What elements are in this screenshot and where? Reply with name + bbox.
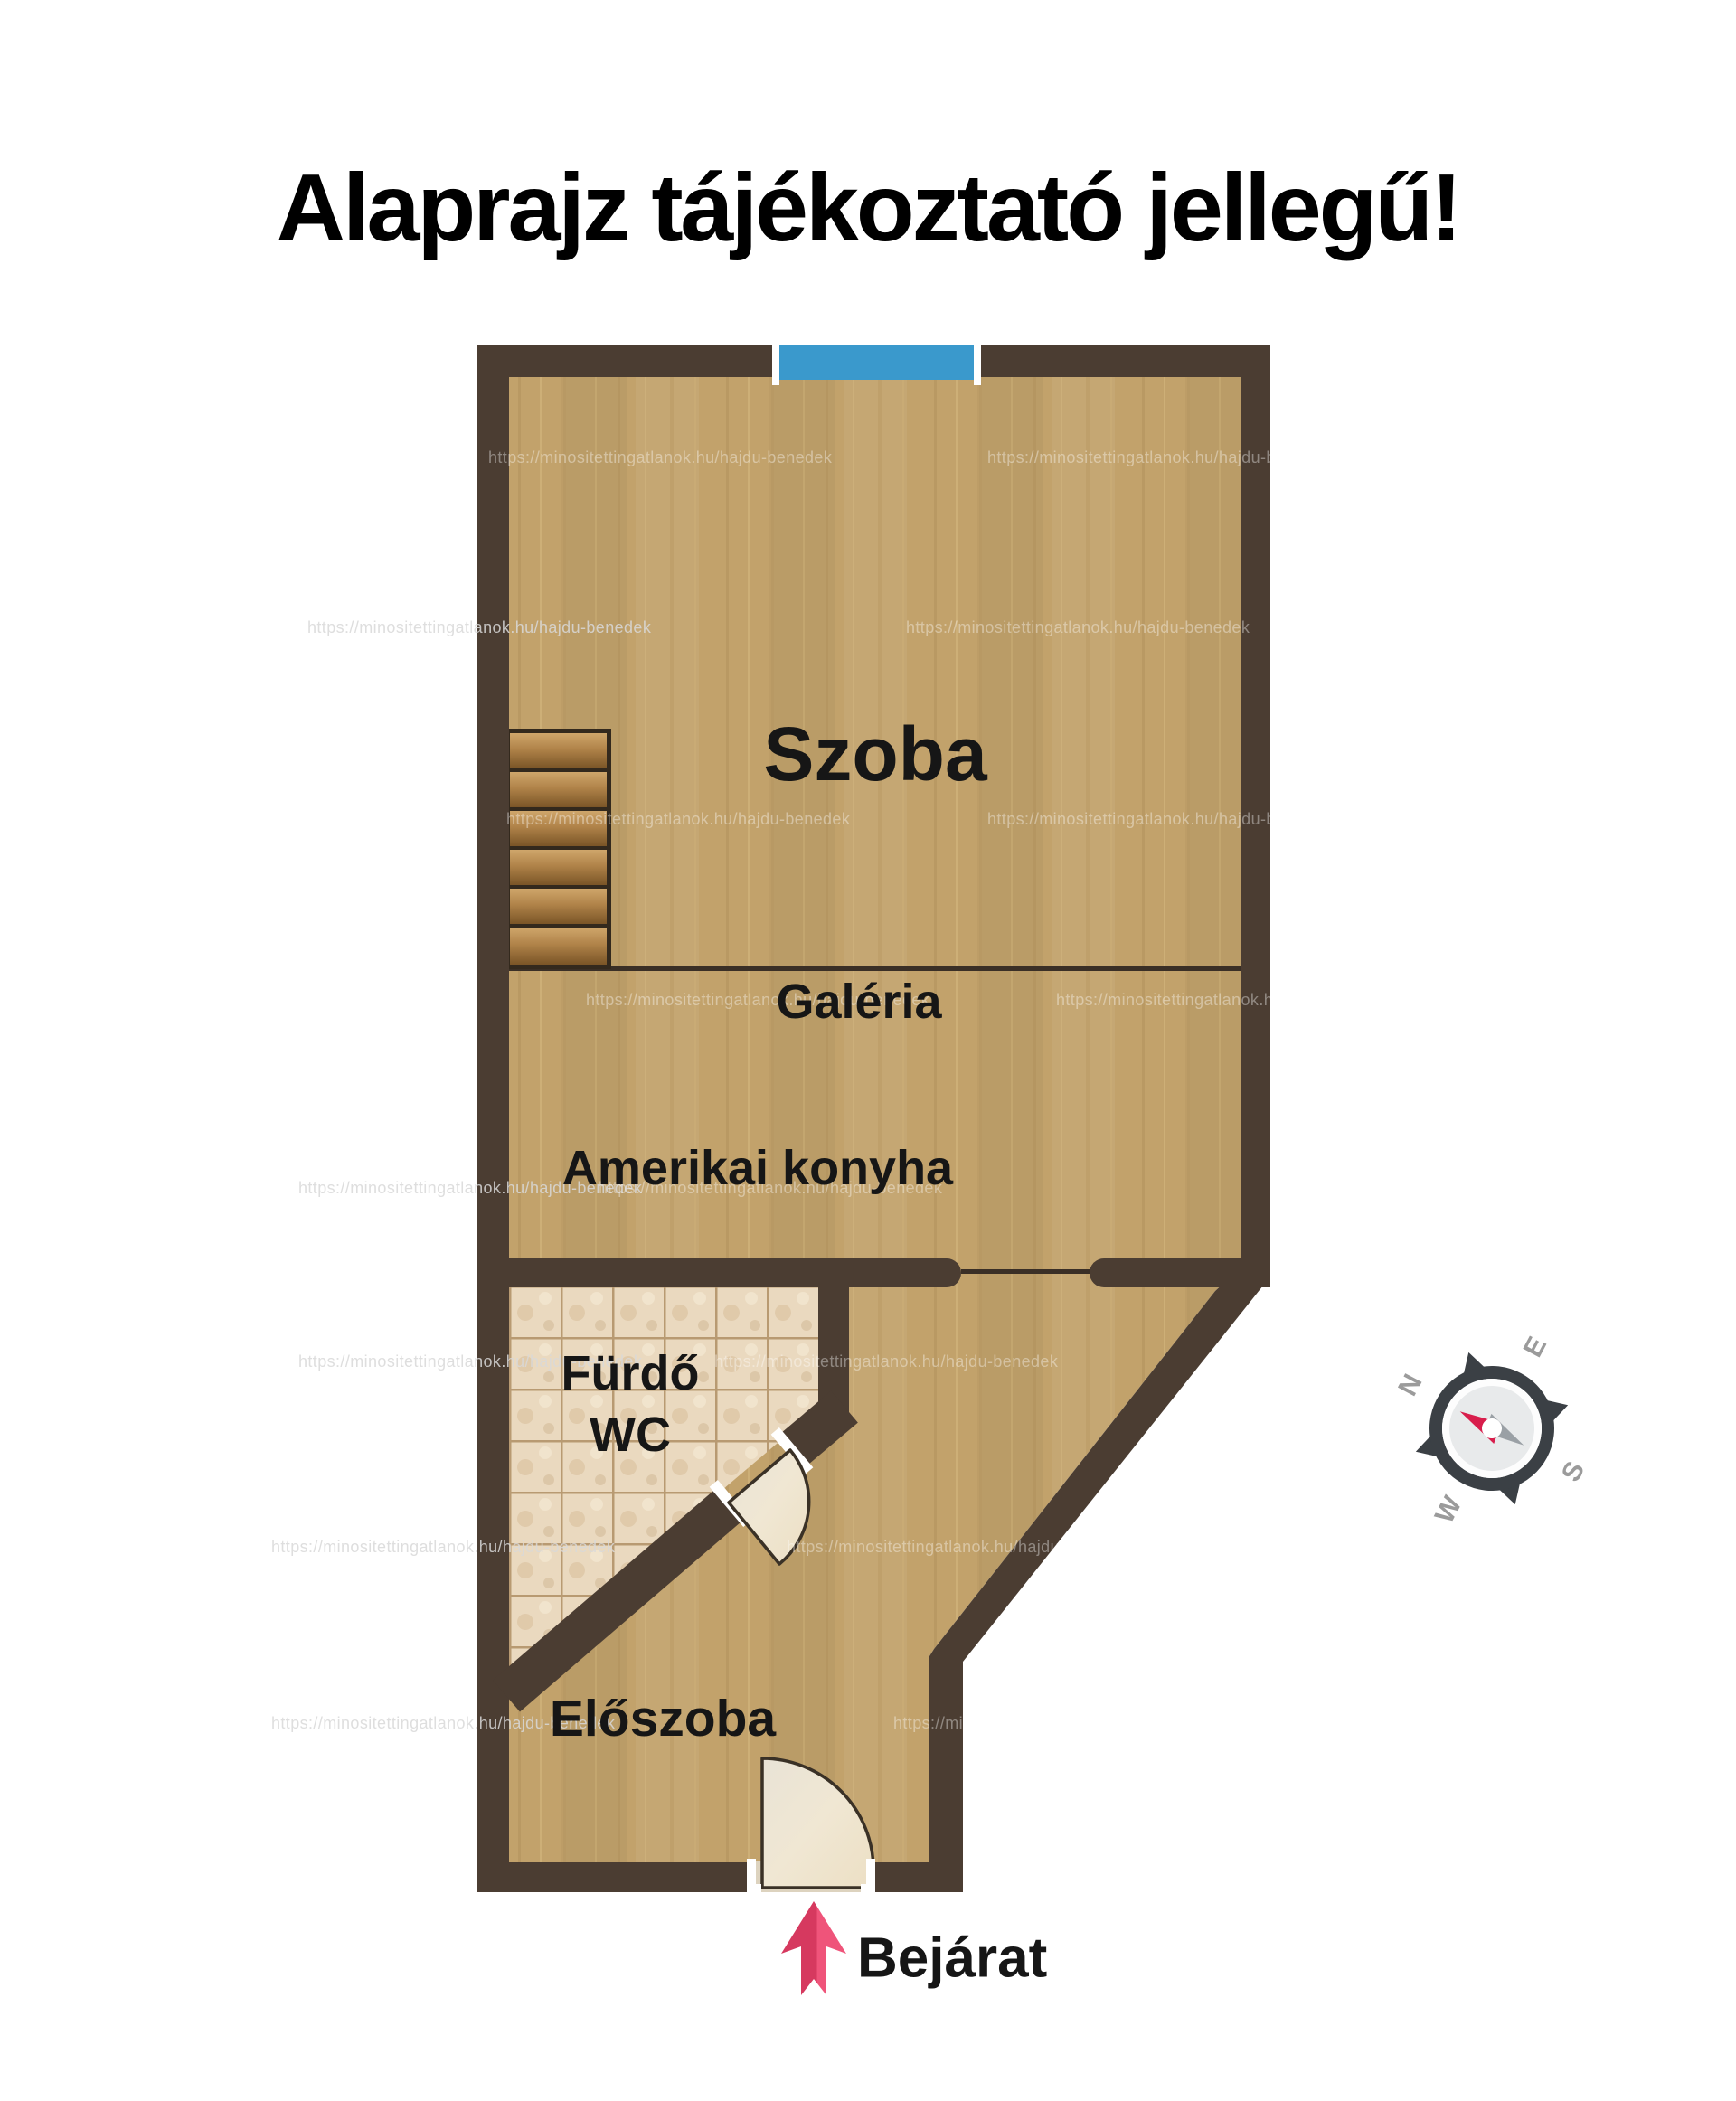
doorway-line: [961, 1269, 1090, 1274]
room-label-wc: WC: [590, 1408, 671, 1462]
compass-icon: N E S W: [1348, 1288, 1634, 1571]
room-label-furdo: Fürdő: [561, 1346, 700, 1400]
entrance-marker: Bejárat: [781, 1901, 1047, 1995]
room-label-galeria: Galéria: [776, 975, 942, 1029]
compass-label-s: S: [1556, 1456, 1591, 1486]
watermark-text: https://minositettingatlanok.hu/hajdu-be…: [1056, 991, 1401, 1009]
watermark-text: https://minositettingatlanok.hu/hajdu-be…: [987, 810, 1332, 828]
floor-plan: Alaprajz tájékoztató jellegű!: [0, 0, 1736, 2101]
stairs: [505, 729, 611, 969]
compass-label-n: N: [1392, 1370, 1428, 1401]
room-label-szoba: Szoba: [763, 711, 988, 796]
compass-label-w: W: [1429, 1491, 1468, 1528]
room-label-eloszoba: Előszoba: [550, 1690, 778, 1748]
watermark-text: https://minositettingatlanok.hu/hajdu-be…: [987, 448, 1332, 466]
watermark-text: https://minositettingatlanok.hu/hajdu-be…: [307, 618, 652, 636]
page-title: Alaprajz tájékoztató jellegű!: [277, 155, 1460, 261]
galeria-edge-line: [509, 966, 1241, 971]
watermark-text: https://minositettingatlanok.hu/hajdu-be…: [714, 1352, 1059, 1371]
floor-plan-page: Alaprajz tájékoztató jellegű!: [0, 0, 1736, 2101]
watermark-text: https://minositettingatlanok.hu/hajdu-be…: [906, 618, 1250, 636]
compass-label-e: E: [1518, 1332, 1553, 1361]
entrance-label: Bejárat: [857, 1927, 1047, 1990]
watermark-text: https://minositettingatlanok.hu/hajdu-be…: [893, 1714, 1238, 1732]
window-jamb-right: [974, 340, 981, 385]
window: [772, 340, 981, 385]
watermark-text: https://minositettingatlanok.hu/hajdu-be…: [488, 448, 833, 466]
room-label-konyha: Amerikai konyha: [562, 1141, 954, 1195]
watermark-text: https://minositettingatlanok.hu/hajdu-be…: [271, 1538, 616, 1556]
floor-wood: [509, 377, 1241, 1862]
window-jamb-left: [772, 340, 779, 385]
watermark-text: https://minositettingatlanok.hu/hajdu-be…: [787, 1538, 1131, 1556]
watermark-text: https://minositettingatlanok.hu/hajdu-be…: [506, 810, 851, 828]
entrance-arrow-icon: [781, 1901, 846, 1995]
